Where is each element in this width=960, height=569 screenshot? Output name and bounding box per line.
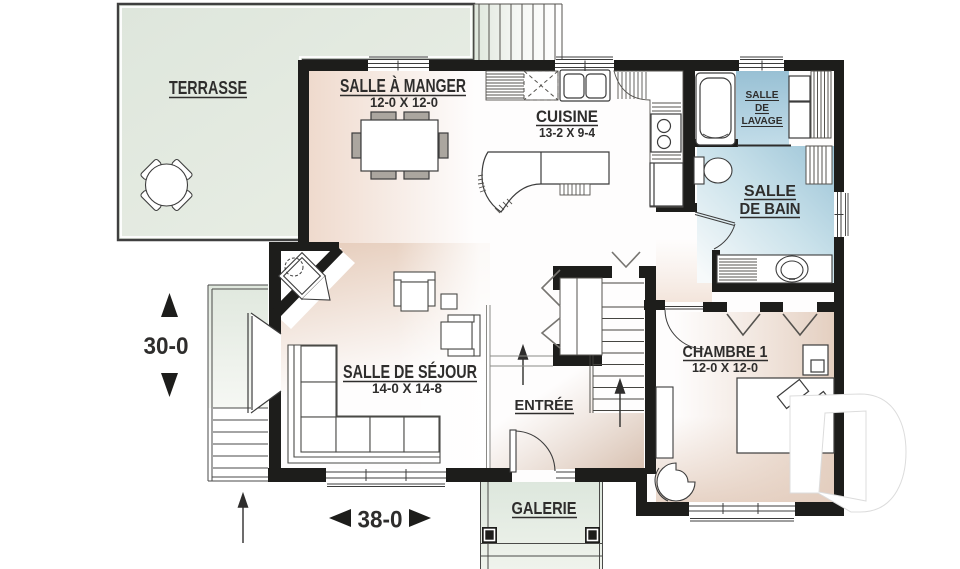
svg-text:12-0 X 12-0: 12-0 X 12-0 — [692, 360, 758, 375]
svg-text:13-2 X 9-4: 13-2 X 9-4 — [539, 125, 596, 140]
svg-text:TERRASSE: TERRASSE — [169, 78, 247, 98]
svg-text:SALLE DE SÉJOUR: SALLE DE SÉJOUR — [343, 361, 477, 382]
svg-text:SALLE: SALLE — [744, 183, 796, 200]
svg-text:30-0: 30-0 — [144, 333, 189, 360]
svg-text:12-0 X 12-0: 12-0 X 12-0 — [370, 95, 438, 110]
svg-text:38-0: 38-0 — [358, 507, 403, 534]
svg-text:CUISINE: CUISINE — [536, 108, 598, 126]
svg-text:CHAMBRE 1: CHAMBRE 1 — [683, 344, 768, 361]
svg-text:SALLE À MANGER: SALLE À MANGER — [340, 75, 466, 96]
svg-text:DE: DE — [755, 103, 769, 114]
svg-text:14-0 X 14-8: 14-0 X 14-8 — [372, 381, 442, 396]
svg-text:LAVAGE: LAVAGE — [742, 116, 783, 127]
svg-text:DE BAIN: DE BAIN — [740, 201, 801, 218]
svg-text:ENTRÉE: ENTRÉE — [515, 397, 574, 414]
svg-text:SALLE: SALLE — [746, 90, 779, 101]
svg-text:GALERIE: GALERIE — [512, 498, 577, 518]
